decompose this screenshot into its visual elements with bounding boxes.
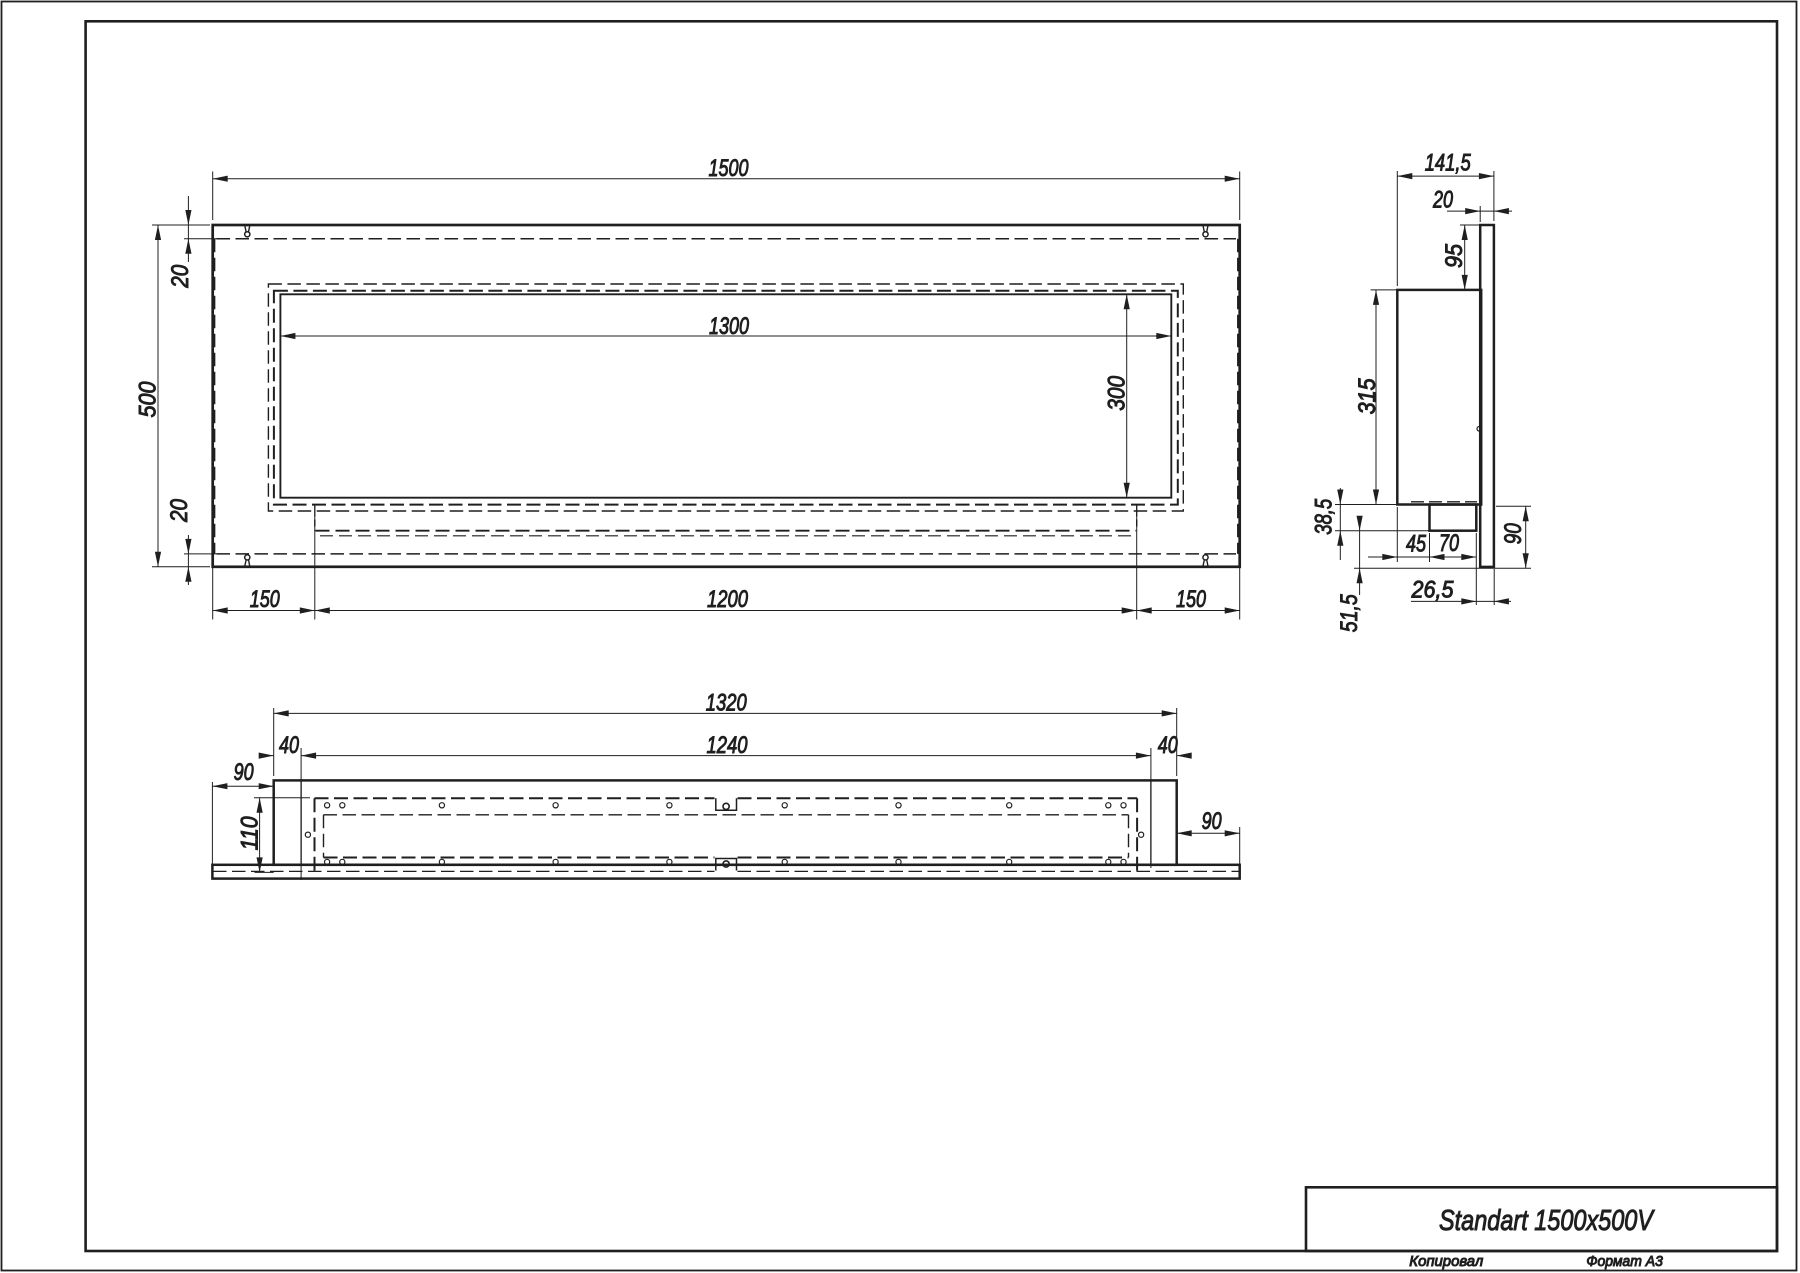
svg-text:20: 20 (167, 264, 194, 288)
svg-text:141,5: 141,5 (1425, 149, 1471, 176)
svg-text:20: 20 (166, 498, 193, 522)
svg-text:1200: 1200 (707, 586, 749, 613)
svg-text:315: 315 (1354, 378, 1381, 415)
svg-text:1500: 1500 (709, 155, 749, 182)
svg-text:110: 110 (236, 816, 263, 851)
svg-text:150: 150 (250, 586, 280, 613)
svg-text:1320: 1320 (706, 689, 748, 716)
svg-text:70: 70 (1439, 530, 1459, 557)
svg-text:90: 90 (1202, 808, 1222, 835)
svg-text:500: 500 (135, 381, 162, 418)
svg-text:1300: 1300 (709, 313, 749, 340)
svg-text:Формат А3: Формат А3 (1586, 1253, 1663, 1270)
svg-text:Копировал: Копировал (1409, 1253, 1484, 1270)
svg-text:38,5: 38,5 (1311, 498, 1338, 534)
svg-text:26,5: 26,5 (1411, 577, 1454, 604)
svg-text:51,5: 51,5 (1336, 594, 1363, 633)
svg-text:90: 90 (1500, 523, 1527, 545)
svg-text:20: 20 (1432, 187, 1453, 214)
svg-text:150: 150 (1176, 586, 1206, 613)
svg-text:300: 300 (1104, 375, 1131, 411)
svg-text:95: 95 (1441, 243, 1468, 268)
svg-text:90: 90 (234, 759, 254, 786)
svg-text:40: 40 (279, 732, 299, 759)
svg-text:40: 40 (1158, 732, 1178, 759)
svg-text:45: 45 (1406, 531, 1426, 558)
svg-text:Standart 1500x500V: Standart 1500x500V (1439, 1205, 1655, 1237)
svg-text:1240: 1240 (707, 732, 749, 759)
